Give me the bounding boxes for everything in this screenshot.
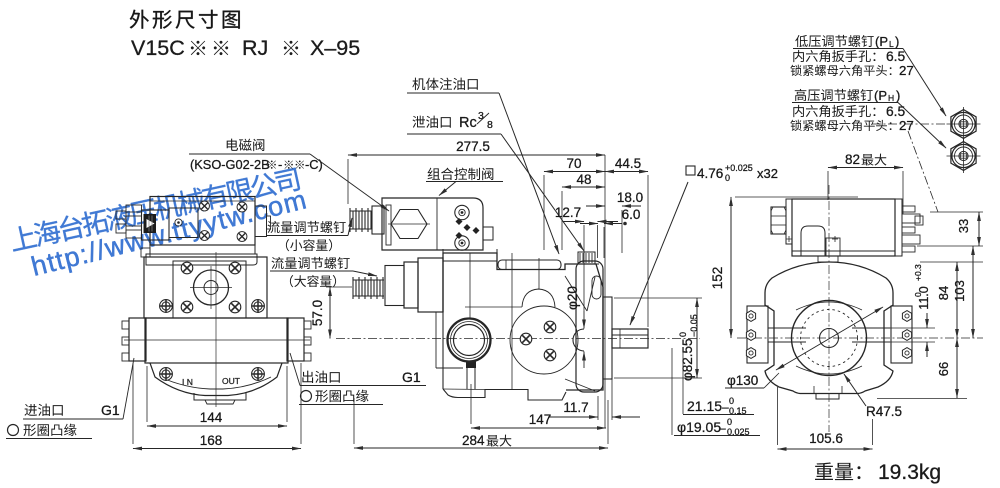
- svg-text:RJ: RJ: [242, 36, 268, 60]
- svg-text:I N: I N: [182, 377, 193, 387]
- svg-text:φ130: φ130: [727, 373, 758, 388]
- svg-text:φ82.55: φ82.55: [680, 338, 695, 381]
- svg-text:144: 144: [200, 410, 223, 425]
- svg-text:6.0: 6.0: [622, 207, 641, 222]
- svg-text:+0.3: +0.3: [913, 264, 923, 281]
- svg-text:-: -: [278, 157, 282, 172]
- svg-text:(KSO-G02-2B: (KSO-G02-2B: [190, 157, 270, 172]
- svg-text:152: 152: [710, 267, 725, 290]
- svg-text:–: –: [719, 421, 726, 435]
- svg-text:G1: G1: [402, 369, 421, 385]
- svg-text:φ19.05: φ19.05: [677, 419, 721, 435]
- svg-text:V15C: V15C: [131, 36, 185, 60]
- svg-text:57.0: 57.0: [310, 300, 325, 326]
- svg-text:103: 103: [952, 280, 967, 302]
- svg-text:): ): [895, 34, 899, 49]
- svg-text:OUT: OUT: [222, 376, 240, 386]
- svg-text:–: –: [722, 400, 729, 414]
- svg-text:4.76: 4.76: [697, 166, 723, 181]
- svg-text:284: 284: [462, 433, 485, 448]
- svg-text:19.3kg: 19.3kg: [878, 461, 941, 484]
- svg-text:66: 66: [936, 362, 951, 376]
- svg-text:27: 27: [899, 118, 914, 133]
- svg-text:21.15: 21.15: [687, 398, 722, 414]
- svg-text:82: 82: [845, 152, 860, 167]
- svg-text:0: 0: [678, 332, 688, 337]
- svg-text:x32: x32: [757, 166, 778, 181]
- svg-text:84: 84: [936, 286, 951, 300]
- svg-text:48: 48: [576, 172, 591, 187]
- svg-text:+0.025: +0.025: [725, 163, 753, 173]
- svg-text:70: 70: [566, 156, 581, 171]
- svg-text:12.7: 12.7: [555, 205, 581, 220]
- svg-text:0: 0: [913, 292, 923, 297]
- svg-text:18.0: 18.0: [617, 190, 643, 205]
- svg-text:(P: (P: [874, 88, 887, 103]
- svg-text:H: H: [888, 93, 894, 103]
- svg-text:8: 8: [487, 119, 493, 131]
- svg-text:44.5: 44.5: [615, 156, 641, 171]
- svg-text:X–95: X–95: [310, 36, 360, 60]
- svg-text:277.5: 277.5: [456, 139, 490, 154]
- svg-text:6.5: 6.5: [886, 104, 906, 119]
- svg-text:0: 0: [729, 396, 734, 406]
- svg-text:-C): -C): [305, 157, 323, 172]
- svg-text:11.7: 11.7: [563, 400, 588, 415]
- svg-text:6.5: 6.5: [886, 49, 906, 64]
- svg-text:): ): [896, 88, 900, 103]
- svg-text:(P: (P: [875, 34, 888, 49]
- svg-text:168: 168: [200, 433, 223, 448]
- svg-text:G1: G1: [101, 402, 120, 418]
- svg-text:27: 27: [899, 63, 914, 78]
- svg-text:0: 0: [725, 173, 730, 183]
- svg-text:33: 33: [956, 219, 971, 233]
- svg-text:R47.5: R47.5: [866, 404, 902, 419]
- svg-text:105.6: 105.6: [809, 431, 843, 446]
- svg-text:φ20: φ20: [565, 286, 580, 310]
- svg-text:147: 147: [529, 412, 552, 427]
- svg-text:Rc: Rc: [459, 115, 477, 131]
- svg-text:L: L: [889, 39, 894, 49]
- svg-text:0: 0: [727, 417, 732, 427]
